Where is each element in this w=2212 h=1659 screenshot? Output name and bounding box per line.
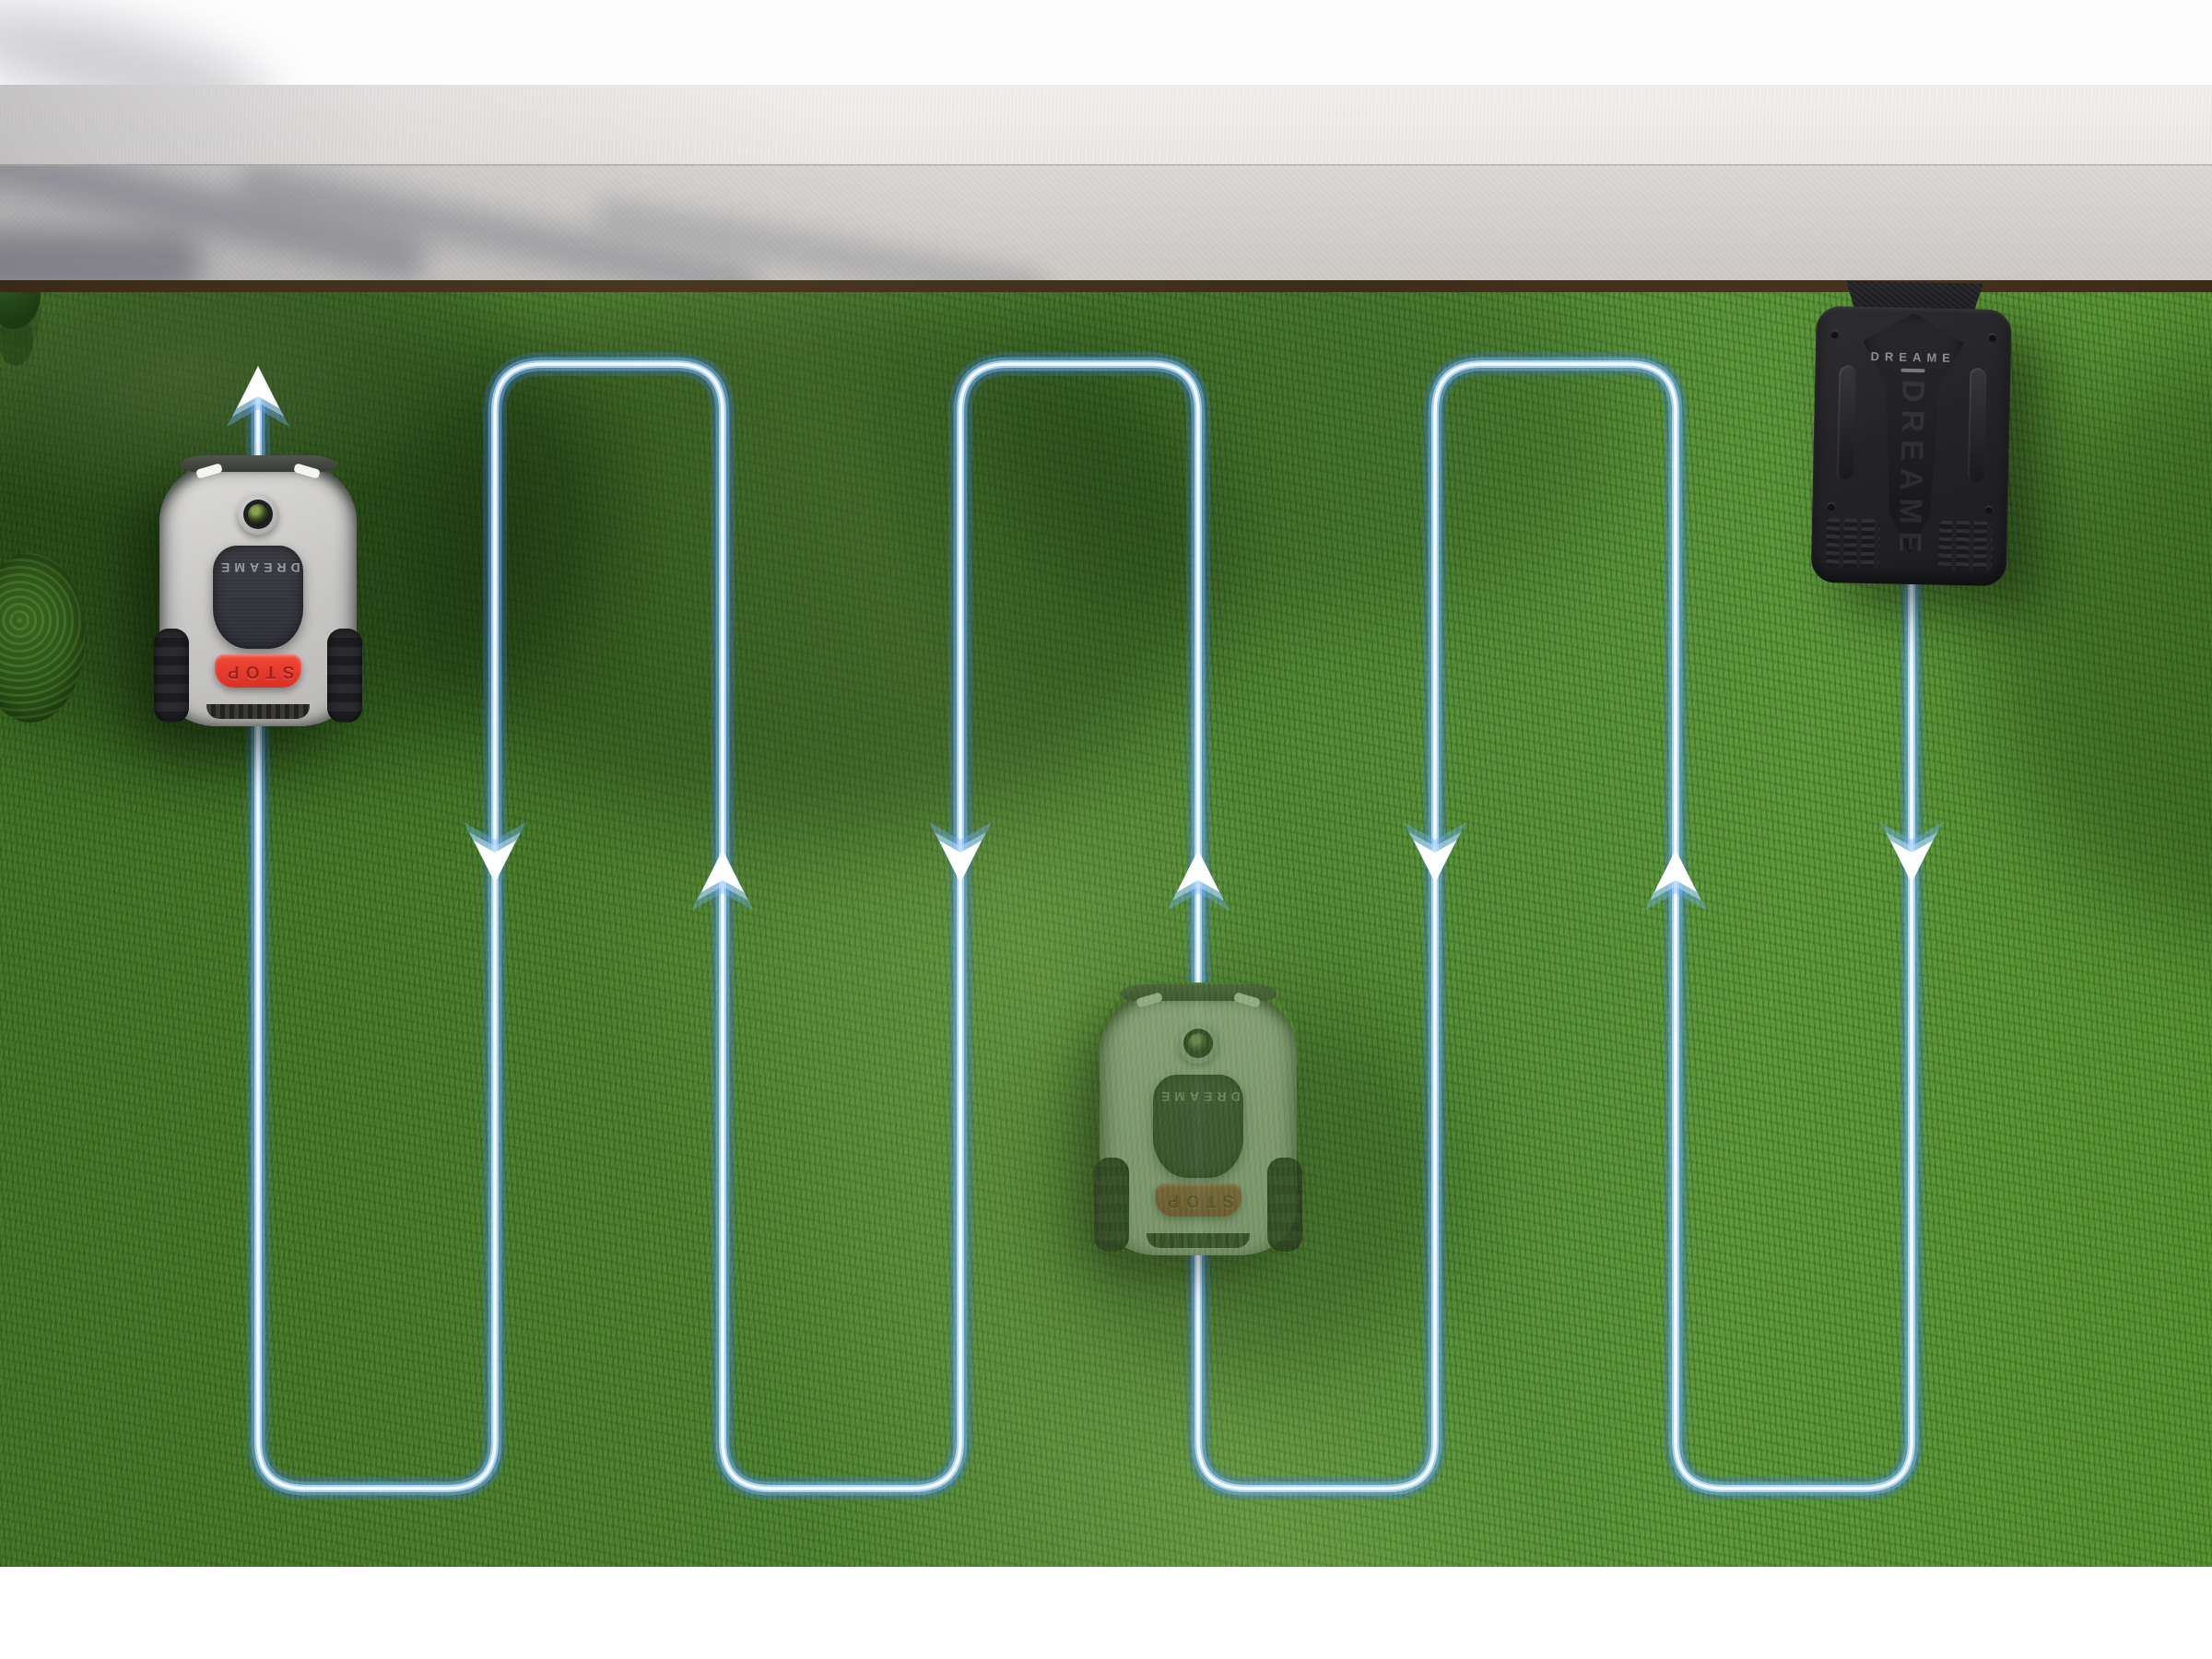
mower-rear-grill xyxy=(206,704,310,719)
station-vent-right xyxy=(1938,521,1993,571)
lawn-scene: DREAME STOP DREAME STOP DREAME DREAME xyxy=(0,0,2212,1659)
mower-wheel-left xyxy=(154,629,189,723)
mower-center-panel: DREAME xyxy=(213,546,303,649)
mow-path-svg xyxy=(0,0,2212,1659)
station-brand-underline xyxy=(1900,369,1924,373)
mower-camera xyxy=(238,494,278,535)
mower-stop-button: STOP xyxy=(215,654,301,688)
ghost-robot-mower: DREAME STOP xyxy=(1100,982,1297,1255)
station-vent-left xyxy=(1826,518,1880,569)
mower-brand-label: DREAME xyxy=(217,560,300,575)
mow-path-line xyxy=(258,364,1912,1488)
station-vertical-brand-label: DREAME xyxy=(1891,380,1931,560)
mower-camera xyxy=(1178,1023,1218,1064)
station-side-slot-left xyxy=(1837,365,1856,481)
mower-wheel-left xyxy=(1094,1158,1129,1252)
robot-mower: DREAME STOP xyxy=(159,453,357,726)
charging-station: DREAME DREAME xyxy=(1811,286,2013,586)
mower-stop-button: STOP xyxy=(1155,1183,1241,1217)
mower-center-panel: DREAME xyxy=(1153,1075,1243,1178)
mower-rear-grill xyxy=(1147,1233,1250,1248)
mower-wheel-right xyxy=(1267,1158,1302,1252)
stop-button-label: STOP xyxy=(221,661,294,681)
mower-wheel-right xyxy=(327,629,362,723)
white-margin-bottom xyxy=(0,1567,2212,1659)
station-side-slot-right xyxy=(1968,367,1987,484)
mower-brand-label: DREAME xyxy=(1157,1089,1241,1104)
stop-button-label: STOP xyxy=(1161,1190,1234,1210)
